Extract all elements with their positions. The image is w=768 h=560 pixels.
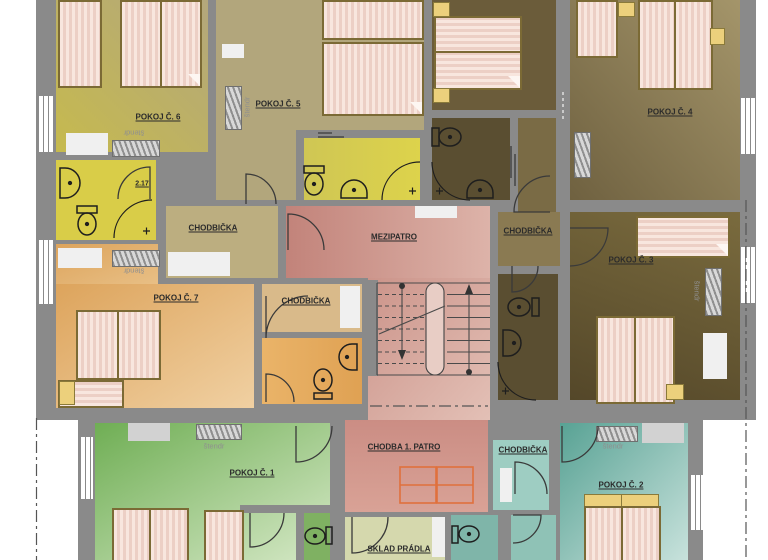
clothes-rack-label: štendr (204, 442, 225, 451)
room-label-pokoj-3: POKOJ Č. 3 (609, 256, 654, 265)
staircase (377, 283, 490, 375)
clothes-rack-label: štendr (124, 267, 145, 276)
skylight-outline (400, 467, 473, 503)
room-label-chodbicka-bottom-right: CHODBIČKA (499, 446, 548, 455)
room-number-2-17: 2.17 (135, 181, 149, 188)
floor-plan: POKOJ Č. 6 POKOJ Č. 5 POKOJ Č. 4 POKOJ Č… (0, 0, 768, 560)
clothes-rack-label: štendr (603, 442, 624, 451)
dash-dot-outline (37, 200, 747, 560)
room-label-pokoj-4: POKOJ Č. 4 (648, 108, 693, 117)
room-label-pokoj-1: POKOJ Č. 1 (230, 469, 275, 478)
clothes-rack-label: štendr (124, 129, 145, 138)
room-label-pokoj-5: POKOJ Č. 5 (256, 100, 301, 109)
room-label-pokoj-6: POKOJ Č. 6 (136, 113, 181, 122)
room-label-sklad-pradla: SKLAD PRÁDLA (367, 545, 430, 554)
clothes-rack-label: štendr (693, 281, 702, 302)
room-label-chodba-1-patro: CHODBA 1. PATRO (368, 443, 441, 452)
fixtures-overlay (0, 0, 768, 560)
room-label-chodbicka-top-left: CHODBIČKA (189, 224, 238, 233)
toilet-icon (77, 128, 539, 544)
room-label-chodbicka-right: CHODBIČKA (504, 227, 553, 236)
room-label-pokoj-2: POKOJ Č. 2 (599, 481, 644, 490)
room-label-pokoj-7: POKOJ Č. 7 (154, 294, 199, 303)
door-arcs (118, 133, 608, 553)
clothes-rack-label: štendr (243, 97, 252, 118)
room-label-mezipatro: MEZIPATRO (371, 233, 417, 242)
room-label-chodbicka-center: CHODBIČKA (282, 297, 331, 306)
